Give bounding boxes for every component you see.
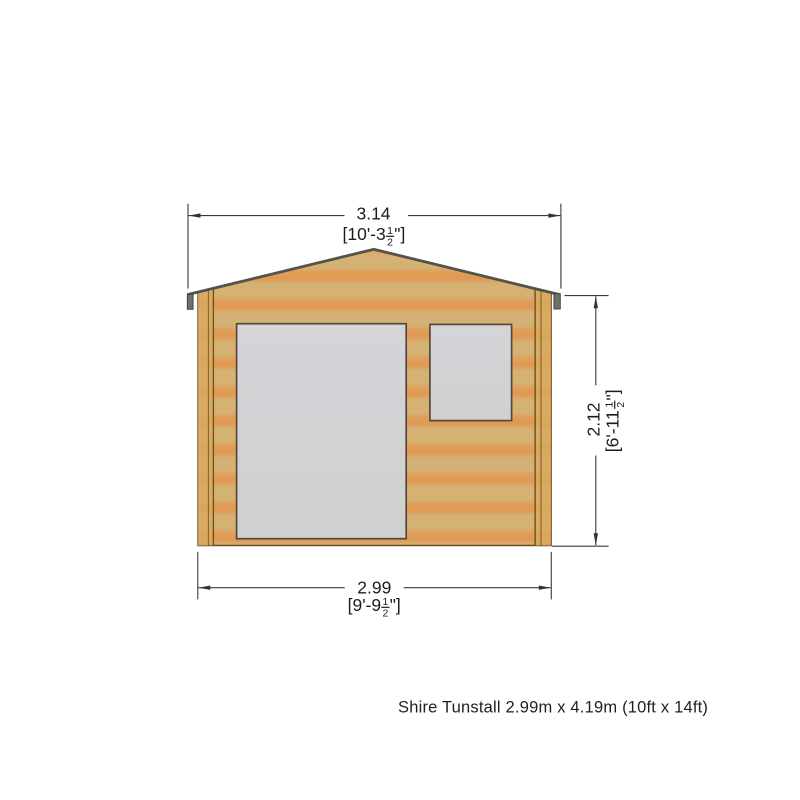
svg-text:[9'-9: [9'-9: [348, 595, 382, 615]
svg-text:[6'-11: [6'-11: [602, 410, 622, 452]
svg-text:2: 2: [387, 236, 393, 248]
svg-text:3.14: 3.14: [356, 203, 390, 223]
svg-text:Shire Tunstall 2.99m x 4.19m (: Shire Tunstall 2.99m x 4.19m (10ft x 14f…: [398, 699, 708, 717]
svg-text:"]: "]: [394, 224, 405, 244]
svg-text:"]: "]: [602, 389, 622, 400]
svg-text:2: 2: [382, 607, 388, 619]
svg-text:1: 1: [603, 402, 615, 408]
svg-text:"]: "]: [390, 595, 401, 615]
svg-text:2: 2: [615, 402, 627, 408]
svg-text:1: 1: [387, 225, 393, 237]
svg-text:1: 1: [382, 596, 388, 608]
svg-text:2.12: 2.12: [583, 402, 603, 436]
svg-text:[10'-3: [10'-3: [343, 224, 386, 244]
